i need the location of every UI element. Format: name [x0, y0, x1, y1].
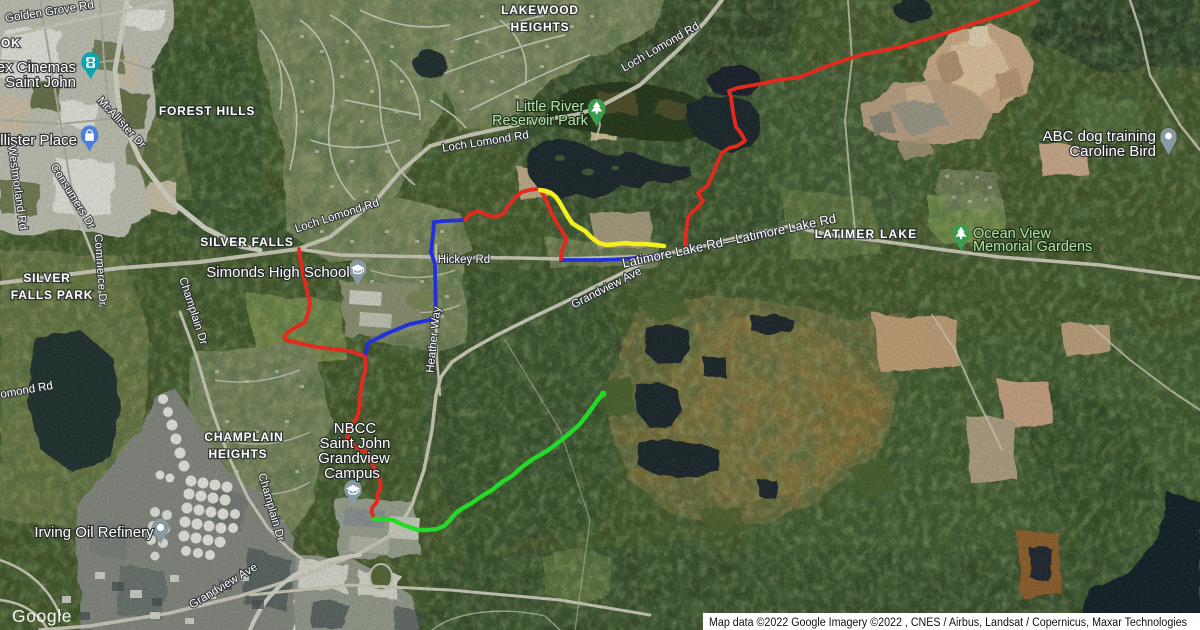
- svg-text:SILVER: SILVER: [23, 271, 70, 285]
- svg-text:Google: Google: [12, 606, 72, 626]
- svg-text:SILVER FALLS: SILVER FALLS: [200, 235, 293, 249]
- svg-text:HEIGHTS: HEIGHTS: [511, 20, 570, 34]
- svg-text:FALLS PARK: FALLS PARK: [11, 288, 93, 302]
- svg-text:Reservoir Park: Reservoir Park: [492, 113, 589, 129]
- svg-text:LAKEWOOD: LAKEWOOD: [501, 3, 579, 17]
- svg-text:LATIMER LAKE: LATIMER LAKE: [815, 227, 918, 241]
- svg-text:CHAMPLAIN: CHAMPLAIN: [204, 430, 283, 444]
- svg-text:OK: OK: [1, 36, 21, 50]
- svg-text:Memorial Gardens: Memorial Gardens: [973, 239, 1092, 255]
- svg-text:Saint John: Saint John: [5, 74, 76, 91]
- svg-text:Simonds High School: Simonds High School: [206, 264, 349, 281]
- svg-text:FOREST HILLS: FOREST HILLS: [159, 104, 255, 118]
- svg-text:Campus: Campus: [324, 465, 380, 482]
- svg-text:HEIGHTS: HEIGHTS: [209, 447, 268, 461]
- svg-text:Hickey Rd: Hickey Rd: [438, 254, 490, 266]
- svg-text:Map data ©2022 Google Imagery: Map data ©2022 Google Imagery ©2022 , CN…: [709, 617, 1187, 629]
- svg-text:Irving Oil Refinery: Irving Oil Refinery: [34, 524, 154, 541]
- svg-text:Caroline Bird: Caroline Bird: [1069, 143, 1156, 160]
